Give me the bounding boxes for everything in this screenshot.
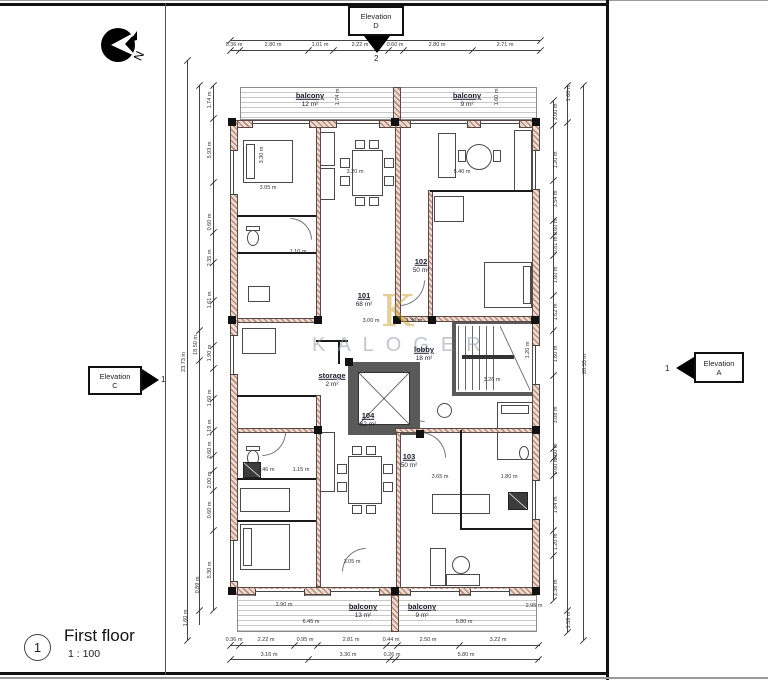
floor-plan-sheet: { "sheet": { "number": "1", "title": "Fi… bbox=[0, 0, 768, 680]
room-name: balcony bbox=[453, 92, 481, 101]
column bbox=[228, 587, 236, 595]
furniture-toilet bbox=[519, 446, 529, 460]
furniture-chair bbox=[366, 446, 376, 455]
dimension-label: 3.54 m bbox=[553, 191, 559, 208]
wall bbox=[460, 430, 462, 530]
furniture-sink-unit bbox=[248, 286, 270, 302]
furniture-pillow bbox=[523, 266, 531, 304]
furniture-wardrobe bbox=[434, 196, 464, 222]
dimension-tick bbox=[537, 47, 544, 54]
grid-ref-1-right: 1 bbox=[665, 364, 669, 373]
room-label: balcony9 m² bbox=[408, 603, 436, 619]
door-swing bbox=[399, 280, 425, 306]
dimension-label: 5.30 m bbox=[207, 562, 213, 579]
room-name: 104 bbox=[360, 412, 377, 421]
dimension-label: 3.00 m bbox=[553, 104, 559, 121]
furniture-chair bbox=[383, 482, 393, 492]
dimension-label: 3.00 m bbox=[363, 318, 380, 324]
room-area: 50 m² bbox=[401, 461, 418, 469]
elevation-a-arrow-icon bbox=[676, 357, 694, 379]
dimension-label: 1.46 m bbox=[258, 467, 275, 473]
dimension-label: 1.74 m bbox=[335, 89, 341, 106]
column bbox=[314, 426, 322, 434]
room-area: 68 m² bbox=[356, 300, 373, 308]
furniture-round-table bbox=[452, 556, 470, 574]
furniture-chair bbox=[337, 482, 347, 492]
staircase bbox=[452, 320, 536, 396]
dimension-label: 3.65 m bbox=[432, 474, 449, 480]
dimension-line bbox=[567, 85, 568, 632]
furniture-chair bbox=[384, 176, 394, 186]
dimension-label: 1.20 m bbox=[525, 342, 531, 359]
room-area: 62 m² bbox=[360, 420, 377, 428]
elevation-c-label: Elevation bbox=[100, 372, 131, 381]
dimension-label: 1.10 m bbox=[290, 249, 307, 255]
column bbox=[532, 587, 540, 595]
dimension-label: 1.60 m bbox=[183, 610, 189, 627]
dimension-label: 1.60 m bbox=[553, 267, 559, 284]
dimension-label: 1.61 m bbox=[207, 292, 213, 309]
wall bbox=[237, 395, 316, 397]
column bbox=[416, 430, 424, 438]
dimension-label: 3.30 m bbox=[340, 652, 357, 658]
furniture-chair bbox=[366, 505, 376, 514]
dimension-label: 3.26 m bbox=[484, 377, 501, 383]
room-area: 50 m² bbox=[413, 266, 430, 274]
furniture-wardrobe bbox=[240, 488, 290, 512]
furniture-kitchen-counter bbox=[514, 130, 532, 192]
room-area: 13 m² bbox=[349, 611, 377, 619]
furniture-pillow bbox=[243, 528, 252, 566]
dimension-line bbox=[230, 659, 540, 660]
window bbox=[336, 121, 380, 128]
column bbox=[228, 316, 236, 324]
furniture-sofa bbox=[446, 574, 480, 586]
north-letter: N bbox=[131, 49, 147, 63]
dimension-label: 0.26 m bbox=[384, 652, 401, 658]
wall bbox=[237, 215, 316, 217]
dimension-label: 1.60 m bbox=[207, 390, 213, 407]
room-area: 9 m² bbox=[408, 611, 436, 619]
dimension-label: 5.80 m bbox=[458, 652, 475, 658]
dimension-label: 1.84 m bbox=[553, 497, 559, 514]
room-label: storage2 m² bbox=[318, 372, 345, 388]
furniture-chair bbox=[352, 505, 362, 514]
dimension-label: 0.36 m bbox=[226, 42, 243, 48]
furniture-accessible-wc bbox=[437, 403, 452, 418]
room-label: balcony13 m² bbox=[349, 603, 377, 619]
wall bbox=[237, 428, 316, 433]
dimension-tick bbox=[550, 597, 557, 604]
room-name: balcony bbox=[408, 603, 436, 612]
dimension-tick bbox=[535, 656, 542, 663]
room-label: balcony9 m² bbox=[453, 92, 481, 108]
dimension-label: 2.80 m bbox=[429, 42, 446, 48]
room-label: 10350 m² bbox=[401, 453, 418, 469]
furniture-round-table bbox=[466, 144, 492, 170]
dimension-label: 0.89 m bbox=[195, 577, 201, 594]
window bbox=[410, 121, 468, 128]
furniture-desk bbox=[242, 328, 276, 354]
wall bbox=[316, 395, 321, 587]
room-name: 101 bbox=[356, 292, 373, 301]
dimension-label: 1.01 m bbox=[312, 42, 329, 48]
dimension-label: 3.05 m bbox=[344, 559, 361, 565]
dimension-label: 2.81 m bbox=[343, 637, 360, 643]
dimension-line bbox=[187, 60, 188, 640]
dimension-label: 3.30 m bbox=[259, 147, 265, 164]
window bbox=[470, 589, 510, 596]
room-name: balcony bbox=[296, 92, 324, 101]
dimension-label: 2.22 m bbox=[258, 637, 275, 643]
dimension-tick bbox=[580, 637, 587, 644]
room-name: lobby bbox=[414, 346, 434, 355]
furniture-chair bbox=[493, 150, 501, 162]
sheet-title: First floor bbox=[64, 626, 135, 646]
dimension-label: 18.50 m bbox=[193, 335, 199, 355]
furniture-shower bbox=[508, 492, 528, 510]
dimension-label: 0.36 m bbox=[226, 637, 243, 643]
wall bbox=[237, 520, 316, 522]
elevation-marker-a: Elevation A bbox=[694, 352, 744, 383]
dimension-label: 1.60 m bbox=[494, 89, 500, 106]
dimension-label: 0.60 m bbox=[553, 458, 559, 475]
elevation-c-arrow-icon bbox=[142, 369, 159, 391]
elevation-a-letter: A bbox=[716, 368, 721, 377]
dimension-label: 0.81 m bbox=[553, 237, 559, 254]
dimension-label: 6.45 m bbox=[303, 619, 320, 625]
room-label: 10462 m² bbox=[360, 412, 377, 428]
balcony-bottom bbox=[237, 595, 537, 632]
room-name: storage bbox=[318, 372, 345, 381]
dimension-label: 1.80 m bbox=[501, 474, 518, 480]
column bbox=[393, 316, 401, 324]
dimension-label: 5.80 m bbox=[456, 619, 473, 625]
window bbox=[410, 589, 460, 596]
furniture-chair bbox=[352, 446, 362, 455]
dimension-label: 3.38 m bbox=[553, 580, 559, 597]
sheet-scale: 1 : 100 bbox=[68, 648, 100, 660]
dimension-label: 1.68 m bbox=[566, 85, 572, 102]
dimension-label: 2.80 m bbox=[265, 42, 282, 48]
column bbox=[314, 316, 322, 324]
column bbox=[391, 587, 399, 595]
dimension-label: 23.73 m bbox=[181, 352, 187, 372]
north-arrow-icon: N bbox=[96, 22, 152, 75]
dimension-tick bbox=[184, 637, 191, 644]
column bbox=[532, 426, 540, 434]
furniture-pillow bbox=[246, 144, 255, 179]
wall bbox=[428, 190, 433, 320]
column bbox=[228, 118, 236, 126]
dimension-label: 5.40 m bbox=[454, 169, 471, 175]
door-swing bbox=[262, 432, 286, 456]
dimension-label: 2.00 m bbox=[207, 472, 213, 489]
window bbox=[252, 121, 310, 128]
furniture-cistern bbox=[246, 446, 260, 451]
furniture-table bbox=[348, 456, 382, 504]
dimension-label: 3.22 m bbox=[490, 637, 507, 643]
window bbox=[255, 589, 305, 596]
window bbox=[231, 540, 238, 582]
dimension-label: 1.15 m bbox=[293, 467, 310, 473]
room-name: balcony bbox=[349, 603, 377, 612]
wall bbox=[237, 318, 316, 323]
window bbox=[533, 480, 540, 520]
column bbox=[532, 118, 540, 126]
room-name: 103 bbox=[401, 453, 418, 462]
dimension-label: 2.95 m bbox=[526, 603, 543, 609]
furniture-chair bbox=[340, 158, 350, 168]
room-label: 10168 m² bbox=[356, 292, 373, 308]
dimension-label: 3.08 m bbox=[553, 407, 559, 424]
dimension-label: 2.71 m bbox=[497, 42, 514, 48]
furniture-cistern bbox=[246, 226, 260, 231]
dimension-label: 1.20 m bbox=[553, 534, 559, 551]
dimension-label: 1.19 m bbox=[207, 420, 213, 437]
dimension-label: 2.90 m bbox=[276, 602, 293, 608]
balcony-top bbox=[240, 87, 537, 120]
dimension-label: 0.95 m bbox=[297, 637, 314, 643]
dimension-label: 3.16 m bbox=[261, 652, 278, 658]
wall bbox=[391, 595, 399, 632]
furniture-chair bbox=[355, 140, 365, 149]
wall bbox=[393, 87, 401, 120]
sheet-number-badge: 1 bbox=[24, 634, 51, 661]
furniture-toilet bbox=[247, 230, 259, 246]
window bbox=[533, 345, 540, 385]
window bbox=[330, 589, 380, 596]
elevation-c-letter: C bbox=[112, 381, 117, 390]
dimension-label: 0.60 m bbox=[207, 214, 213, 231]
dimension-label: 0.60 m bbox=[553, 219, 559, 236]
furniture-sofa bbox=[430, 548, 446, 586]
elevation-a-label: Elevation bbox=[704, 359, 735, 368]
furniture-chair bbox=[337, 464, 347, 474]
dimension-label: 0.60 m bbox=[207, 442, 213, 459]
dimension-label: 1.74 m bbox=[207, 92, 213, 109]
dimension-tick bbox=[535, 642, 542, 649]
dimension-label: 1.20 m bbox=[553, 152, 559, 169]
window bbox=[533, 150, 540, 190]
furniture-pillow bbox=[501, 405, 529, 414]
window bbox=[231, 150, 238, 195]
dimension-tick bbox=[210, 607, 217, 614]
column bbox=[345, 358, 353, 366]
dimension-tick bbox=[537, 37, 544, 44]
furniture-chair bbox=[384, 158, 394, 168]
elevation-d-arrow-icon bbox=[364, 36, 390, 53]
furniture-chair bbox=[340, 176, 350, 186]
wall bbox=[237, 478, 316, 480]
grid-ref-2: 2 bbox=[374, 54, 378, 63]
window bbox=[231, 335, 238, 375]
wall bbox=[316, 127, 321, 320]
room-label: lobby18 m² bbox=[414, 346, 434, 362]
dimension-tick bbox=[564, 629, 571, 636]
wall bbox=[338, 340, 340, 364]
column bbox=[428, 316, 436, 324]
dimension-label: 1.62 m bbox=[553, 304, 559, 321]
furniture-chair bbox=[369, 197, 379, 206]
elevation-marker-c: Elevation C bbox=[88, 366, 142, 395]
room-area: 9 m² bbox=[453, 100, 481, 108]
dimension-label: 3.20 m bbox=[347, 169, 364, 175]
dimension-label: 1.60 m bbox=[553, 346, 559, 363]
door-swing bbox=[290, 218, 312, 240]
column bbox=[531, 316, 539, 324]
wall bbox=[316, 340, 348, 342]
grid-ref-1-left: 1 bbox=[161, 375, 165, 384]
elevation-d-letter: D bbox=[373, 21, 378, 30]
dimension-label: 1.59 m bbox=[566, 612, 572, 629]
dimension-label: 0.44 m bbox=[383, 637, 400, 643]
room-area: 18 m² bbox=[414, 354, 434, 362]
dimension-label: 5.93 m bbox=[207, 142, 213, 159]
dimension-line bbox=[199, 85, 200, 625]
furniture-chair bbox=[355, 197, 365, 206]
wall bbox=[430, 190, 533, 192]
elevation-marker-d: Elevation D bbox=[348, 6, 404, 36]
room-area: 12 m² bbox=[296, 100, 324, 108]
column bbox=[391, 118, 399, 126]
room-name: 102 bbox=[413, 258, 430, 267]
furniture-chair bbox=[458, 150, 466, 162]
dimension-label: 1.90 m bbox=[207, 345, 213, 362]
wall bbox=[395, 127, 401, 318]
room-area: 2 m² bbox=[318, 380, 345, 388]
elevation-d-label: Elevation bbox=[361, 12, 392, 21]
wall bbox=[460, 528, 533, 530]
dimension-label: 1.30 m bbox=[406, 318, 423, 324]
furniture-chair bbox=[383, 464, 393, 474]
dimension-label: 3.05 m bbox=[260, 185, 277, 191]
dimension-label: 2.50 m bbox=[420, 637, 437, 643]
room-label: 10250 m² bbox=[413, 258, 430, 274]
dimension-label: 2.35 m bbox=[207, 250, 213, 267]
room-label: balcony12 m² bbox=[296, 92, 324, 108]
dimension-label: 0.60 m bbox=[207, 502, 213, 519]
dimension-label: 20.55 m bbox=[582, 354, 588, 374]
furniture-chair bbox=[369, 140, 379, 149]
window bbox=[480, 121, 520, 128]
